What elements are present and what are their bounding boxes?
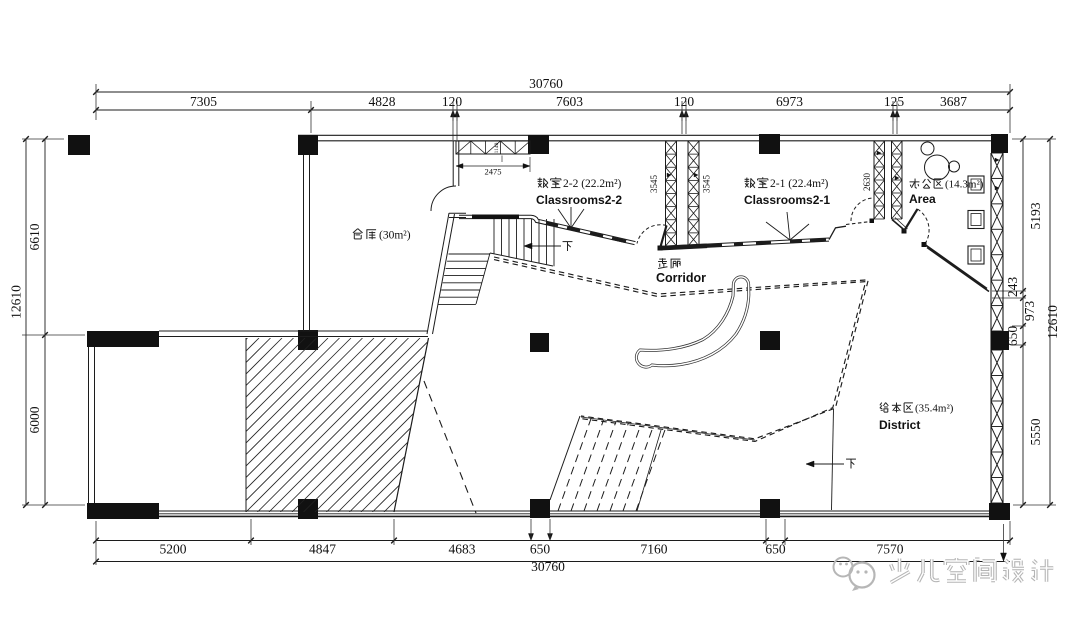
svg-text:2-1 (22.4m²): 2-1 (22.4m²) xyxy=(770,178,829,190)
svg-text:6000: 6000 xyxy=(27,406,42,433)
svg-text:4683: 4683 xyxy=(449,542,476,557)
svg-text:125: 125 xyxy=(884,94,905,109)
svg-text:Classrooms2-1: Classrooms2-1 xyxy=(744,193,830,207)
svg-text:650: 650 xyxy=(530,542,551,557)
svg-text:7160: 7160 xyxy=(641,542,668,557)
svg-text:6610: 6610 xyxy=(27,223,42,250)
svg-text:5193: 5193 xyxy=(1028,202,1043,229)
svg-text:120: 120 xyxy=(674,94,695,109)
svg-text:30760: 30760 xyxy=(529,76,563,91)
svg-text:3545: 3545 xyxy=(649,175,659,194)
svg-text:3545: 3545 xyxy=(702,175,712,194)
svg-text:7305: 7305 xyxy=(190,94,217,109)
svg-text:2630: 2630 xyxy=(862,173,872,192)
svg-text:(30m²): (30m²) xyxy=(379,230,411,242)
svg-text:12610: 12610 xyxy=(1045,305,1060,339)
svg-text:650: 650 xyxy=(765,542,786,557)
svg-text:(35.4m²): (35.4m²) xyxy=(915,403,954,415)
svg-text:4847: 4847 xyxy=(309,542,336,557)
svg-text:120: 120 xyxy=(442,94,463,109)
svg-text:2-2 (22.2m²): 2-2 (22.2m²) xyxy=(563,178,622,190)
svg-text:973: 973 xyxy=(1022,301,1037,322)
svg-text:5550: 5550 xyxy=(1028,418,1043,445)
svg-text:Area: Area xyxy=(909,192,936,206)
svg-text:3687: 3687 xyxy=(940,94,967,109)
svg-text:7603: 7603 xyxy=(556,94,583,109)
svg-text:243: 243 xyxy=(1005,277,1020,298)
svg-text:(14.3m²): (14.3m²) xyxy=(945,179,984,191)
svg-text:30760: 30760 xyxy=(531,559,565,574)
svg-text:District: District xyxy=(879,418,920,432)
svg-text:6973: 6973 xyxy=(776,94,803,109)
svg-text:Corridor: Corridor xyxy=(656,271,706,285)
svg-text:1140: 1140 xyxy=(494,142,500,153)
svg-text:2475: 2475 xyxy=(485,167,502,177)
svg-text:12610: 12610 xyxy=(9,285,24,319)
svg-text:4828: 4828 xyxy=(369,94,396,109)
svg-text:5200: 5200 xyxy=(160,542,187,557)
svg-text:7570: 7570 xyxy=(877,542,904,557)
svg-text:Classrooms2-2: Classrooms2-2 xyxy=(536,193,622,207)
